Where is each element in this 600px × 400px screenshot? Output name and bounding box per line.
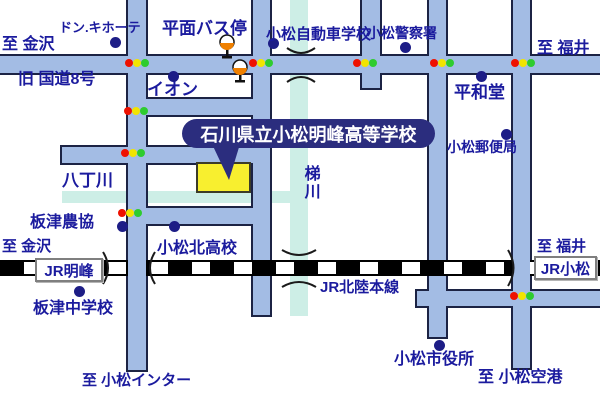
traffic-signal-icon (511, 59, 535, 67)
traffic-signal-icon (124, 107, 148, 115)
poi-marker-city-hall (434, 340, 445, 351)
traffic-signal-icon (118, 209, 142, 217)
traffic-signal-icon (121, 149, 145, 157)
label-haccho-river: 八丁川 (62, 172, 113, 191)
direction-komatsu-inter: 至 小松インター (82, 373, 191, 390)
rail-bridge-arc-bottom (282, 282, 316, 287)
label-itazu-nokyo: 板津農協 (30, 214, 94, 232)
label-donki: ドン.キホーテ (59, 21, 141, 35)
station-jr-meiho-label: JR明峰 (44, 260, 93, 281)
label-itazu-jhs: 板津中学校 (33, 300, 113, 318)
callout-tail (212, 144, 240, 180)
school-name-label: 石川県立小松明峰高等学校 (201, 121, 417, 147)
label-driving-school: 小松自動車学校 (266, 27, 371, 44)
label-bus-stop: 平面バス停 (162, 20, 247, 39)
poi-marker-itazu-jhs (74, 286, 85, 297)
direction-komatsu-airport: 至 小松空港 (478, 369, 562, 387)
road-bridge-arc-bottom (287, 77, 315, 82)
station-jr-komatsu-label: JR小松 (541, 258, 590, 279)
direction-kanazawa-top: 至 金沢 (2, 36, 54, 54)
traffic-signal-icon (125, 59, 149, 67)
label-komatsu-kita: 小松北高校 (157, 240, 237, 258)
traffic-signal-icon (249, 59, 273, 67)
station-jr-komatsu: JR小松 (534, 256, 597, 280)
direction-fukui-right: 至 福井 (537, 239, 586, 256)
road-bridge-arc-top (287, 48, 315, 53)
label-post-office: 小松郵便局 (447, 140, 517, 155)
label-police: 小松警察署 (367, 26, 437, 41)
traffic-signal-icon (430, 59, 454, 67)
poi-marker-komatsu-kita (169, 221, 180, 232)
traffic-signal-icon (510, 292, 534, 300)
rail-crossing-arc-komatsu (508, 250, 514, 286)
direction-kanazawa-left: 至 金沢 (2, 239, 51, 256)
label-kakehashi-river: 梯川 (301, 165, 319, 201)
poi-marker-heiwado (476, 71, 487, 82)
rail-crossing-arc-left (103, 252, 108, 284)
label-heiwado: 平和堂 (454, 84, 505, 103)
access-map: JR明峰 JR小松 至 金沢 ドン.キホーテ 平面バス停 小松自動車学校 小松警… (0, 0, 600, 400)
station-jr-meiho: JR明峰 (35, 258, 103, 282)
rail-bridge-arc-top (282, 250, 316, 255)
label-route8: 旧 国道8号 (18, 71, 95, 89)
poi-marker-donki (110, 37, 121, 48)
label-rail-line: JR北陸本線 (320, 280, 399, 297)
rail-crossing-arc-right (150, 252, 155, 284)
bus-stop-icon-south (233, 60, 247, 83)
map-symbols-overlay (0, 0, 600, 400)
poi-marker-police (400, 42, 411, 53)
label-aeon: イオン (147, 81, 198, 100)
traffic-signal-icon (353, 59, 377, 67)
label-city-hall: 小松市役所 (394, 351, 474, 369)
poi-marker-itazu-nokyo (117, 221, 128, 232)
direction-fukui-top: 至 福井 (537, 40, 589, 58)
school-name-callout: 石川県立小松明峰高等学校 (182, 119, 435, 148)
